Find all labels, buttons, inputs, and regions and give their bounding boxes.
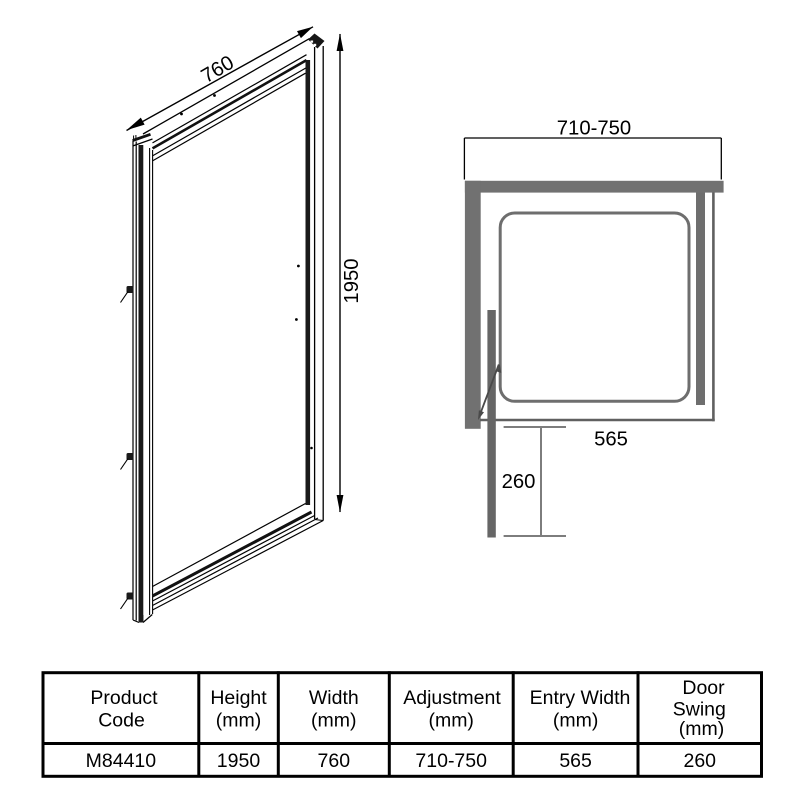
svg-text:Door: Door [682,677,725,699]
svg-text:710-750: 710-750 [557,118,631,140]
svg-text:(mm): (mm) [679,718,724,740]
svg-text:(mm): (mm) [428,710,473,732]
svg-text:260: 260 [683,750,716,772]
svg-text:Product: Product [90,687,158,709]
svg-text:565: 565 [594,429,628,451]
svg-text:710-750: 710-750 [415,750,487,772]
svg-text:Width: Width [309,687,359,709]
svg-text:565: 565 [559,750,592,772]
svg-text:Entry Width: Entry Width [530,687,631,709]
svg-text:260: 260 [502,471,536,493]
svg-text:1950: 1950 [341,258,363,303]
svg-text:M84410: M84410 [86,750,157,772]
svg-text:Height: Height [210,687,267,709]
svg-text:(mm): (mm) [553,710,598,732]
svg-text:760: 760 [318,750,351,772]
svg-text:Adjustment: Adjustment [403,687,501,709]
svg-text:(mm): (mm) [216,710,261,732]
svg-text:Code: Code [98,710,145,732]
svg-text:1950: 1950 [217,750,261,772]
svg-text:(mm): (mm) [311,710,356,732]
